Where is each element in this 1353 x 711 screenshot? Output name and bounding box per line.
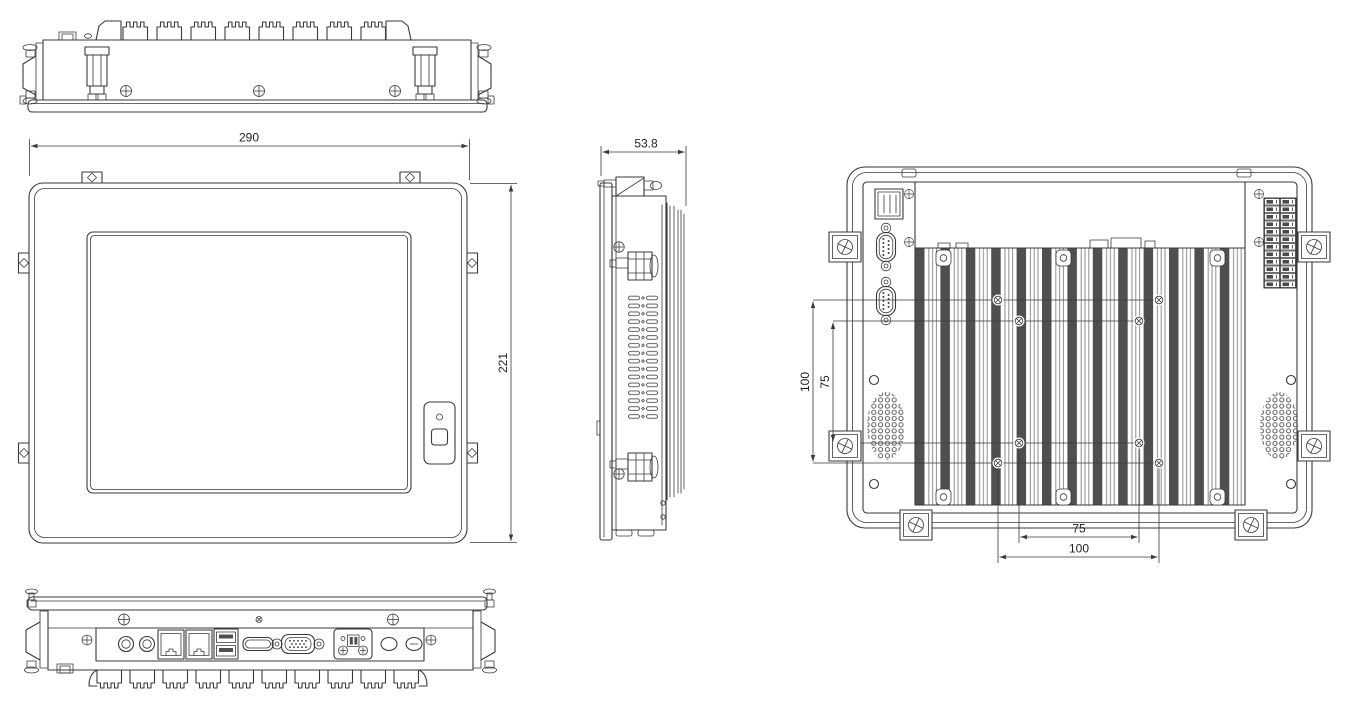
screw-icon bbox=[1254, 237, 1263, 246]
dim-label-vesa-v-inner: 75 bbox=[818, 375, 832, 389]
mount-clip bbox=[19, 253, 30, 273]
vesa-hole bbox=[1154, 295, 1165, 306]
heatsink-fins-top bbox=[96, 21, 411, 40]
side-bezel bbox=[600, 183, 612, 540]
dim-label-front-width: 290 bbox=[239, 131, 259, 145]
side-heatsink-profile bbox=[667, 203, 684, 500]
ethernet-port-1 bbox=[158, 630, 184, 659]
screw-icon bbox=[119, 614, 130, 625]
side-top-bracket bbox=[598, 177, 662, 196]
audio-jack-1 bbox=[119, 637, 134, 652]
screw-icon bbox=[614, 469, 624, 479]
vga-port bbox=[272, 635, 324, 654]
dim-vesa-horizontal-outer: 100 bbox=[1000, 542, 1158, 558]
screw-icon bbox=[426, 635, 436, 645]
mount-clamp bbox=[829, 431, 861, 461]
screw-icon bbox=[388, 614, 399, 625]
side-bracket-right bbox=[473, 589, 497, 673]
dim-front-height: 221 bbox=[470, 184, 517, 543]
dim-label-front-height: 221 bbox=[496, 353, 510, 373]
top-bezel-strip bbox=[28, 100, 487, 112]
side-bracket-left bbox=[20, 43, 43, 104]
screw-icon bbox=[254, 86, 265, 97]
bottom-view bbox=[25, 589, 497, 688]
mount-clamp-left bbox=[85, 47, 109, 100]
dim-label-vesa-v-outer: 100 bbox=[798, 372, 812, 392]
dim-front-width: 290 bbox=[30, 131, 470, 181]
mount-clamp bbox=[829, 232, 861, 262]
top-view bbox=[20, 21, 494, 112]
screw-icon bbox=[904, 189, 913, 198]
bottom-bezel-strip bbox=[28, 597, 487, 610]
vesa-hole bbox=[1014, 438, 1025, 449]
vesa-hole bbox=[1014, 316, 1025, 327]
ethernet-port-2 bbox=[186, 630, 212, 659]
heatsink-fins-bottom bbox=[89, 670, 427, 688]
mount-clip bbox=[467, 443, 478, 463]
screw-icon bbox=[614, 242, 624, 252]
mount-clip bbox=[82, 172, 102, 183]
side-bracket-right bbox=[471, 43, 494, 104]
vesa-hole bbox=[1134, 438, 1145, 449]
io-port-recess bbox=[96, 628, 424, 661]
top-connector-stub bbox=[59, 32, 76, 40]
usb-ports-bottom bbox=[214, 629, 238, 659]
mount-clamp bbox=[1298, 431, 1330, 461]
button-1 bbox=[381, 638, 397, 651]
technical-drawing: 290 221 53.8 bbox=[0, 0, 1353, 711]
side-bracket-left bbox=[25, 589, 74, 673]
vesa-hole bbox=[993, 458, 1004, 469]
terminal-block bbox=[1264, 198, 1296, 288]
dim-vesa-vertical-inner: 75 bbox=[818, 323, 833, 442]
mount-clamp bbox=[900, 510, 932, 540]
mount-clamp bbox=[1235, 510, 1267, 540]
front-bezel bbox=[29, 183, 467, 543]
vesa-hole bbox=[1134, 316, 1145, 327]
dim-label-side-depth: 53.8 bbox=[634, 137, 658, 151]
power-terminal bbox=[334, 629, 372, 659]
mount-clip bbox=[400, 172, 420, 183]
rear-view: 100 75 75 100 bbox=[798, 167, 1330, 563]
side-vent-grid bbox=[628, 294, 658, 420]
dim-label-vesa-h-inner: 75 bbox=[1072, 522, 1086, 536]
mount-clip bbox=[467, 253, 478, 273]
hdmi-port bbox=[243, 638, 273, 651]
screw-icon bbox=[82, 635, 92, 645]
side-clamp-top bbox=[610, 252, 658, 280]
mount-clamp bbox=[1298, 232, 1330, 262]
vesa-hole bbox=[993, 295, 1004, 306]
mount-clamp-right bbox=[413, 47, 437, 100]
screw-icon bbox=[390, 86, 401, 97]
screw-icon bbox=[121, 86, 132, 97]
screw-icon bbox=[1254, 189, 1263, 198]
mount-clip bbox=[19, 443, 30, 463]
rear-heatsink bbox=[915, 248, 1245, 505]
front-view: 290 221 bbox=[19, 131, 518, 544]
vesa-hole bbox=[1154, 458, 1165, 469]
dim-label-vesa-h-outer: 100 bbox=[1069, 542, 1089, 556]
button-2 bbox=[406, 638, 422, 651]
screw-icon bbox=[255, 615, 263, 623]
side-clamp-bottom bbox=[610, 453, 658, 481]
dim-vesa-vertical-outer: 100 bbox=[798, 302, 813, 462]
side-view: 53.8 bbox=[597, 137, 686, 541]
audio-jack-2 bbox=[140, 637, 155, 652]
screw-icon bbox=[904, 237, 913, 246]
